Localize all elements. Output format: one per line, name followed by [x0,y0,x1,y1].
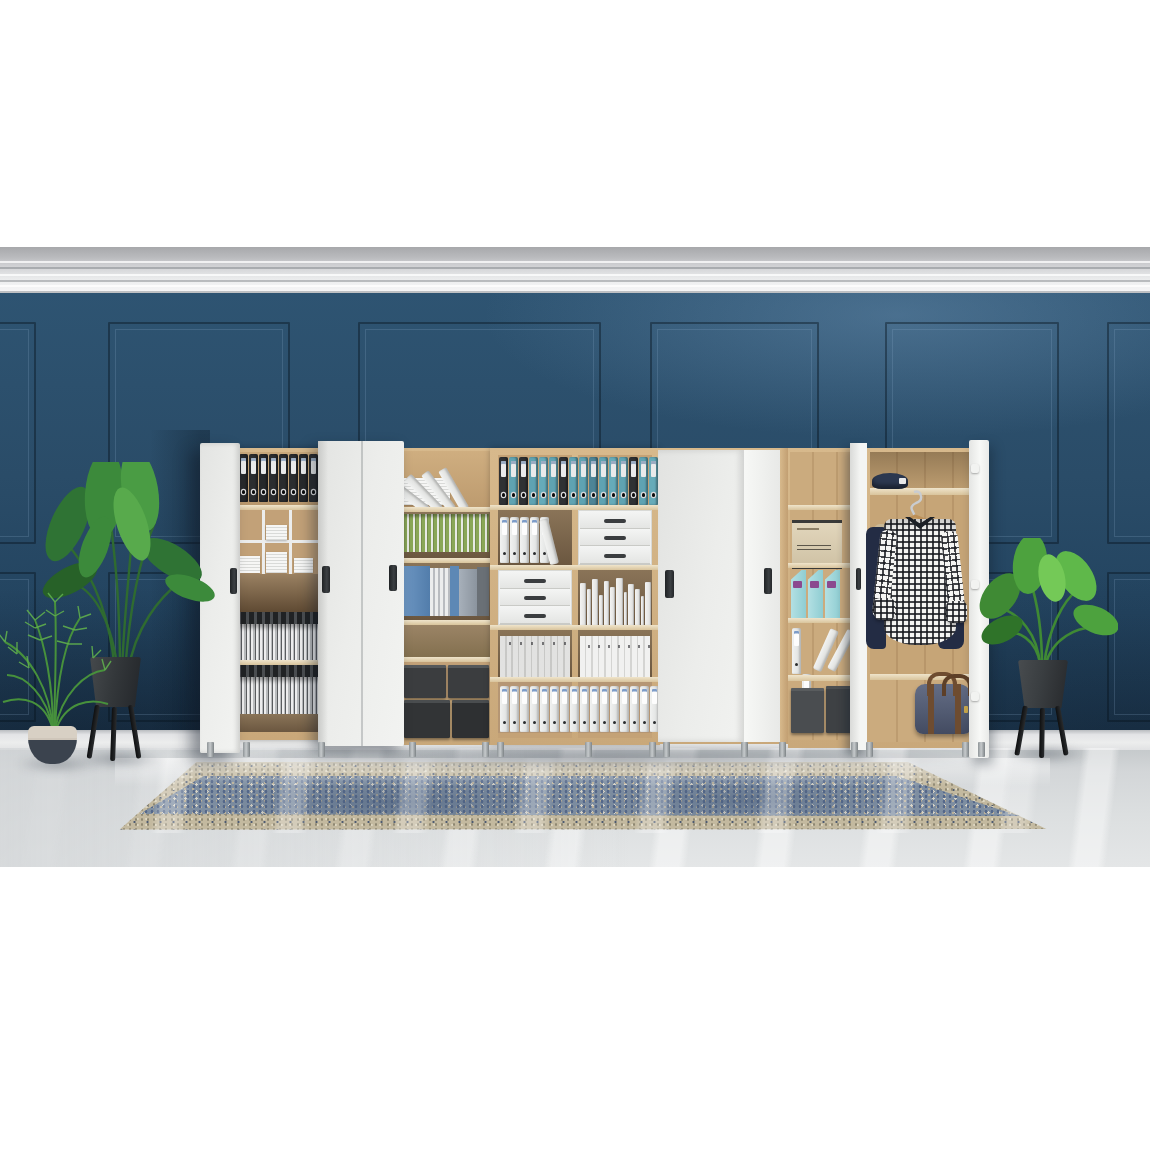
book-row [580,576,652,625]
drawer-unit [498,570,572,625]
white-binder [560,686,569,732]
book [624,592,628,625]
sliding-door-cabinet-module-4 [658,448,788,744]
white-binder [600,686,609,732]
white-binder [520,517,529,563]
white-binder [792,628,801,674]
white-binder [580,686,589,732]
binder [639,457,648,505]
binder [609,457,618,505]
book [587,589,592,625]
book [616,578,623,625]
wall-panel [1107,322,1150,544]
binder [629,457,638,505]
binder [599,457,608,505]
book [599,595,603,625]
binder [509,457,518,505]
binder [519,457,528,505]
white-binder [590,686,599,732]
cabinet-leg [207,742,214,757]
drawer-unit [578,510,652,565]
file-cabinet-module-1 [236,448,326,740]
right-leaf-plant [978,538,1118,668]
sliding-door-edge [744,450,780,742]
white-binder [520,686,529,732]
storage-box [452,700,489,738]
hanging-file-rail [238,612,322,624]
white-binder [500,686,509,732]
duffel-bag [915,684,972,734]
binder [559,457,568,505]
shirt-rolled-cuff [946,601,967,623]
book-row [500,636,570,677]
paper-stack [240,556,260,573]
white-binder [530,517,539,563]
storage-cabinet-module-2 [399,448,494,745]
open-door-edge [850,443,867,750]
storage-box [404,700,450,738]
cabinet-leg [409,742,416,757]
blue-file [450,566,459,616]
palm-plant [0,580,115,745]
cabinet-leg [978,742,985,757]
magazine-file [825,570,840,618]
interior-photo [0,247,1150,867]
door-handle [856,568,861,590]
leaning-binders [403,460,491,507]
paper-stack [266,525,287,540]
white-binder [510,517,519,563]
cabinet-leg [741,742,748,757]
grey-files [459,569,477,616]
binder [549,457,558,505]
black-binder-row [239,454,319,502]
binder [259,454,268,502]
cabinet-leg [318,742,325,757]
wall-panel [0,322,36,544]
paper-stack [266,552,287,573]
door-handle [764,568,772,594]
door-handle [665,570,674,598]
grey-file [477,567,489,616]
book [592,579,598,625]
book [580,583,586,625]
binder [619,457,628,505]
binder [569,457,578,505]
plant-stand-leg [1039,708,1045,758]
book [610,587,615,625]
book [645,582,651,625]
hanging-files [238,624,322,660]
cabinet-leg [962,742,969,757]
cabinet-leg [585,742,592,757]
door-handle [230,568,237,594]
white-binder [500,517,509,563]
cabinet-leg [243,742,250,757]
book [641,596,645,625]
archive-box [792,520,842,569]
white-binder [530,686,539,732]
binder [289,454,298,502]
white-binder [640,686,649,732]
green-suspension-files [404,514,489,552]
white-binder [630,686,639,732]
storage-box [448,665,489,698]
binder [239,454,248,502]
paper-stack [294,558,313,573]
binder [269,454,278,502]
product-photo-canvas [0,0,1150,1150]
cabinet-leg [482,742,489,757]
plant-pot-charcoal [1018,660,1068,708]
open-bookcase-module-3 [490,448,660,745]
book [635,589,640,625]
cabinet-leg [649,742,656,757]
white-binder-row [500,686,580,732]
cabinet-leg [779,742,786,757]
binder [499,457,508,505]
door-handle [322,566,330,593]
white-binder [510,686,519,732]
cabinet-leg [497,742,504,757]
white-dividers [430,568,450,616]
white-binder [540,686,549,732]
shirt-rolled-cuff [874,598,895,620]
blue-files [404,566,430,616]
magazine-file [808,570,823,618]
binder [279,454,288,502]
storage-box [404,665,446,698]
hanging-file-rail [238,665,322,677]
binder-row [579,457,659,505]
door-handle [389,565,397,591]
cabinet-leg [866,742,873,757]
book [604,581,610,625]
open-hinged-door-mid [318,441,404,746]
cabinet-leg [663,742,670,757]
binder [309,454,318,502]
white-binder-row [580,686,660,732]
white-binder [550,686,559,732]
crown-molding [0,247,1150,293]
white-binder [610,686,619,732]
binder [579,457,588,505]
binder [589,457,598,505]
book-row [580,636,650,677]
binder [249,454,258,502]
sliding-door [658,450,744,742]
binder [529,457,538,505]
storage-box [791,688,824,733]
magazine-files [791,570,847,618]
baseball-cap [872,473,908,489]
binder [539,457,548,505]
cabinet-leg [851,742,858,757]
magazine-file [791,570,806,618]
binder [299,454,308,502]
book [628,584,634,625]
binder [649,457,658,505]
white-binder [570,686,579,732]
white-binder [620,686,629,732]
hanging-files [238,677,322,714]
binder-row [499,457,579,505]
